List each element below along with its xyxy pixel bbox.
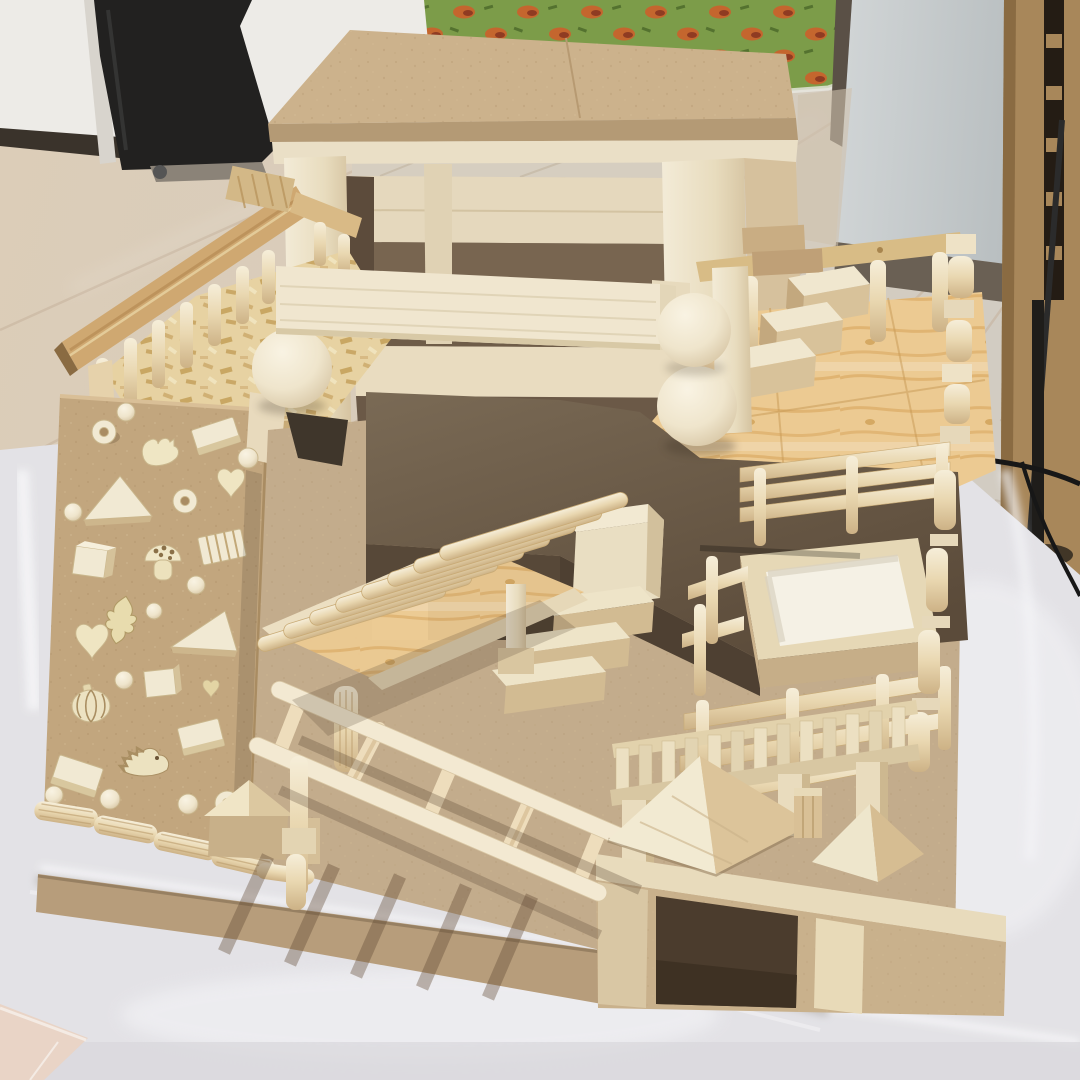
wall-shape-ball xyxy=(146,603,162,619)
upper-landing-block xyxy=(742,225,805,254)
wall-shape-ring xyxy=(173,489,197,513)
wall-shape-ball xyxy=(238,448,258,468)
wall-shape-ball xyxy=(100,789,120,809)
wall-shape-ball xyxy=(187,576,205,594)
wall-shape-ball xyxy=(178,794,198,814)
balcony-wooden-ball xyxy=(252,328,332,415)
photo-wooden-playset xyxy=(0,0,1080,1080)
wall-shape-ball xyxy=(115,671,133,689)
house-right-column xyxy=(814,918,864,1014)
wall-shape-ball xyxy=(64,503,82,521)
wall-shape-ball xyxy=(117,403,135,421)
house-left-column xyxy=(598,882,648,1008)
wall-shape-ball xyxy=(45,786,63,804)
chimney-block xyxy=(794,788,822,838)
